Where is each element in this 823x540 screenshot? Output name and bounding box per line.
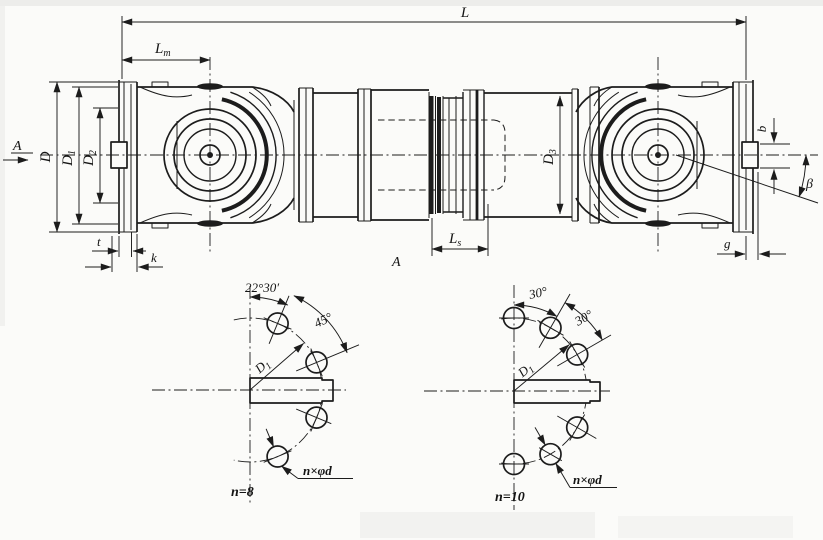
left-flange bbox=[111, 80, 137, 234]
drawing-sheet: L Lm D D1 D2 D3 t k g bbox=[0, 0, 823, 540]
offset-angle-label-n10: 30° bbox=[527, 283, 549, 302]
section-view-label: A bbox=[391, 255, 401, 270]
dim-label-D1: D1 bbox=[60, 150, 78, 167]
dim-label-Lm: Lm bbox=[154, 41, 171, 59]
pitch-angle-label-n8: 45° bbox=[312, 309, 335, 330]
offset-angle-label-n8: 22°30′ bbox=[245, 280, 279, 295]
bolt-circle-label-n8: D1 bbox=[251, 355, 274, 379]
dim-label-D2: D2 bbox=[81, 150, 99, 167]
hole-count-n8: n=8 bbox=[231, 485, 254, 500]
main-view bbox=[40, 57, 818, 252]
dim-label-D3: D3 bbox=[541, 149, 559, 166]
key-end-view-n10 bbox=[514, 380, 600, 403]
pitch-angle-label-n10: 30° bbox=[571, 307, 595, 330]
dim-label-beta: β bbox=[805, 177, 813, 192]
dim-label-g: g bbox=[724, 236, 731, 251]
flange-view-n8: 22°30′ 45° D1 n×φd n=8 bbox=[152, 280, 359, 506]
section-arrow-label: A bbox=[12, 139, 22, 154]
right-flange bbox=[733, 80, 758, 234]
scan-artifacts bbox=[0, 0, 823, 538]
dim-label-Ls: Ls bbox=[448, 231, 461, 249]
dim-label-k: k bbox=[151, 250, 157, 265]
dim-label-t: t bbox=[97, 234, 101, 249]
key-end-view-n8 bbox=[250, 378, 333, 403]
flange-view-n10: 30° 30° D1 n×φd n=10 bbox=[424, 283, 617, 510]
dim-label-D: D bbox=[38, 151, 54, 163]
holes-callout-n10: n×φd bbox=[573, 472, 602, 487]
holes-callout-n8: n×φd bbox=[303, 463, 332, 478]
section-arrow-A: A bbox=[3, 139, 33, 160]
dim-label-L: L bbox=[460, 5, 469, 21]
hole-count-n10: n=10 bbox=[495, 490, 525, 505]
universal-joint-shaft-drawing: L Lm D D1 D2 D3 t k g bbox=[0, 0, 823, 540]
dim-label-b: b bbox=[754, 125, 769, 132]
